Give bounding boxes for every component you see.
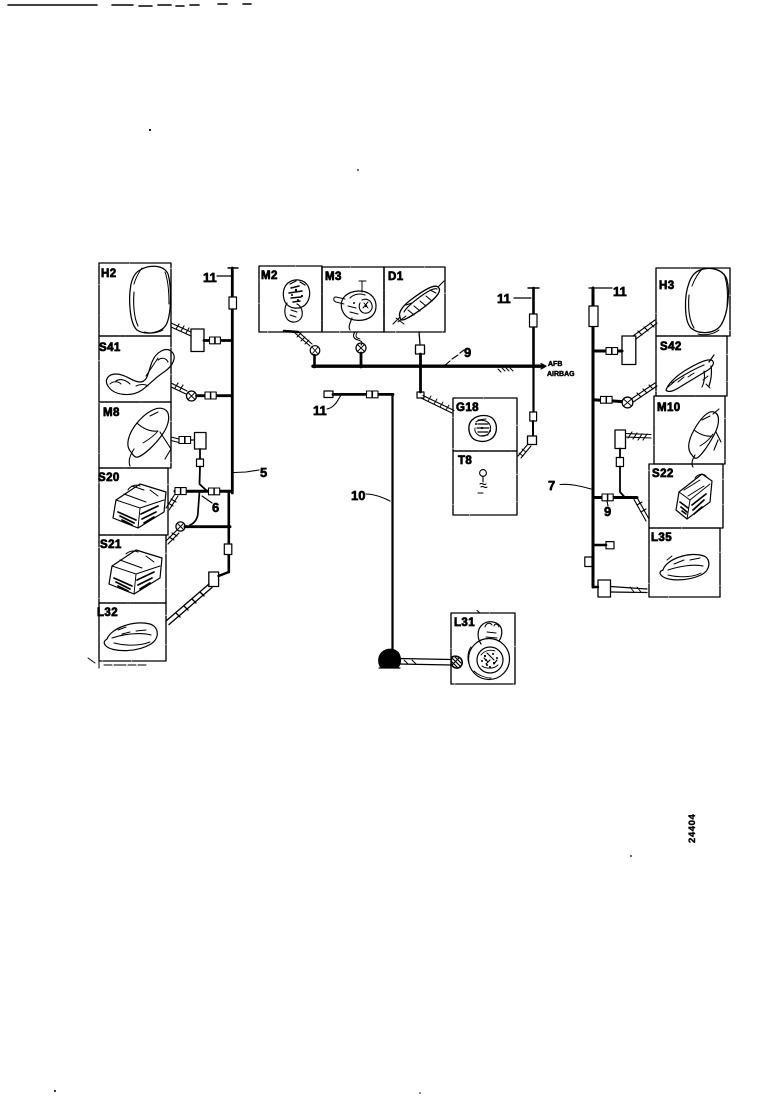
svg-text:S21: S21 bbox=[100, 539, 122, 551]
svg-text:M2: M2 bbox=[261, 270, 278, 282]
svg-text:7: 7 bbox=[548, 478, 555, 493]
svg-text:M3: M3 bbox=[325, 271, 342, 283]
svg-text:S41: S41 bbox=[99, 342, 121, 354]
svg-text:G18: G18 bbox=[456, 402, 479, 414]
svg-text:9: 9 bbox=[464, 345, 471, 360]
svg-text:11: 11 bbox=[203, 270, 217, 285]
svg-text:L31: L31 bbox=[454, 617, 475, 629]
svg-text:11: 11 bbox=[613, 284, 627, 299]
svg-text:24404: 24404 bbox=[687, 813, 698, 843]
svg-text:11: 11 bbox=[313, 403, 327, 418]
svg-text:H2: H2 bbox=[101, 268, 117, 280]
svg-text:S20: S20 bbox=[98, 472, 120, 484]
svg-text:L32: L32 bbox=[97, 607, 118, 619]
svg-text:M8: M8 bbox=[103, 407, 120, 419]
svg-text:5: 5 bbox=[260, 465, 267, 480]
svg-text:6: 6 bbox=[212, 500, 219, 515]
svg-text:H3: H3 bbox=[659, 280, 675, 292]
svg-text:AFB: AFB bbox=[548, 361, 562, 368]
svg-text:L35: L35 bbox=[651, 532, 672, 544]
svg-text:AIRBAG: AIRBAG bbox=[547, 371, 575, 378]
svg-text:S22: S22 bbox=[652, 468, 674, 480]
svg-text:11: 11 bbox=[497, 291, 511, 306]
svg-text:M10: M10 bbox=[657, 402, 681, 414]
svg-text:10: 10 bbox=[351, 488, 365, 503]
svg-text:T8: T8 bbox=[458, 455, 472, 467]
svg-text:D1: D1 bbox=[388, 271, 404, 283]
svg-text:S42: S42 bbox=[660, 341, 682, 353]
